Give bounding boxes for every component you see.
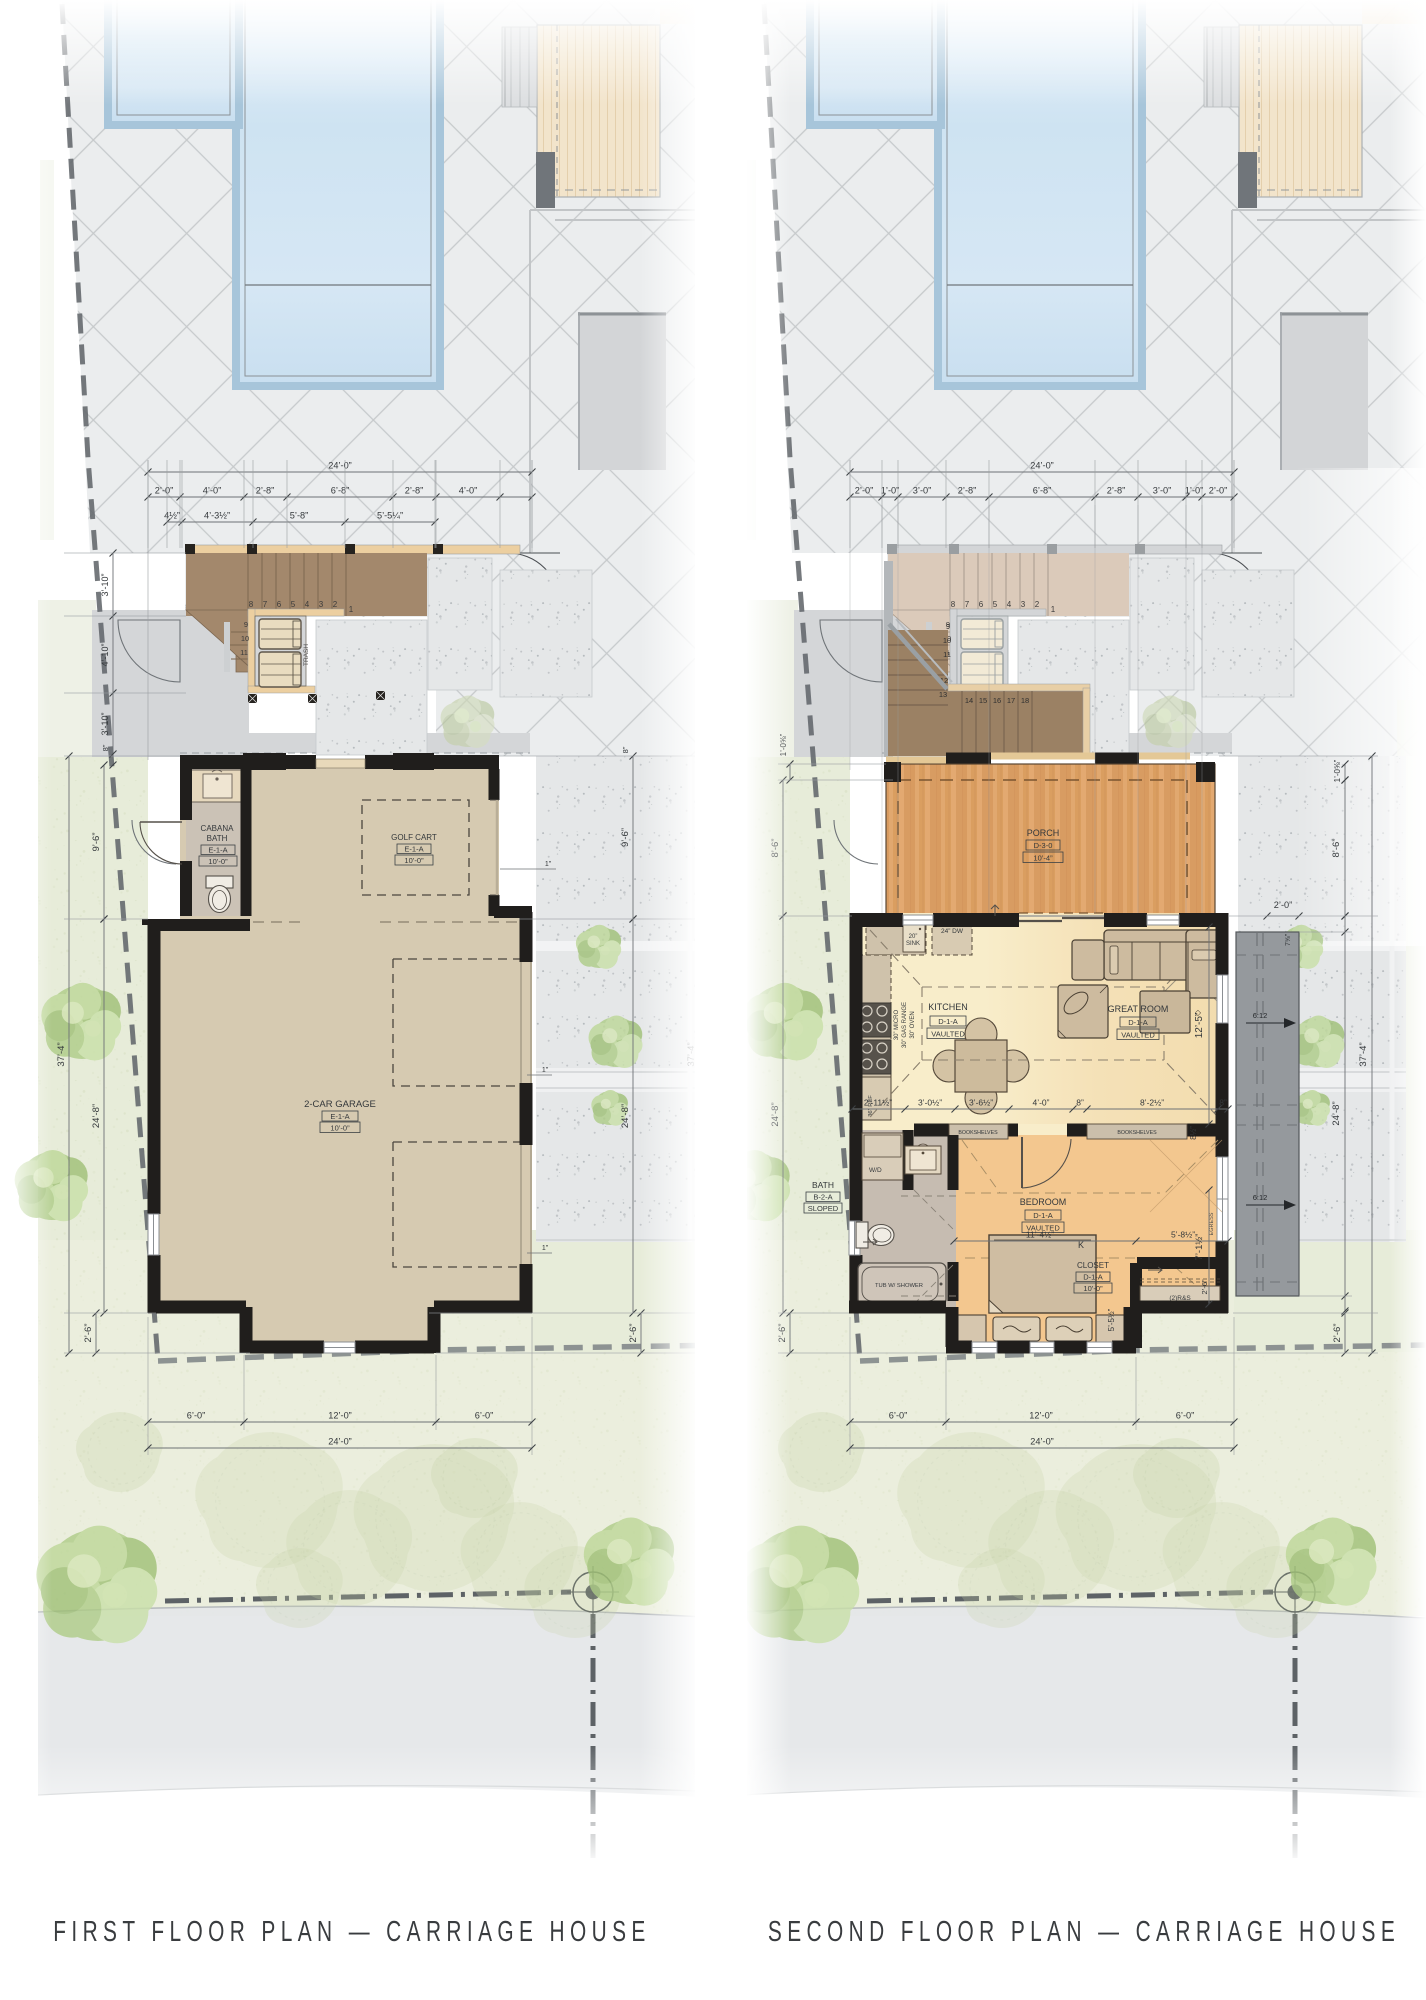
svg-text:4½”: 4½” — [164, 511, 180, 521]
svg-text:10: 10 — [943, 636, 951, 645]
svg-text:CABANA: CABANA — [201, 824, 235, 833]
svg-text:8”: 8” — [1076, 1098, 1084, 1108]
svg-text:30” OVEN: 30” OVEN — [910, 1011, 916, 1038]
svg-text:7: 7 — [263, 600, 268, 609]
svg-text:2’-0”: 2’-0” — [855, 486, 873, 496]
svg-text:2’-0”: 2’-0” — [155, 486, 173, 496]
svg-text:VAULTED: VAULTED — [931, 1029, 965, 1038]
svg-text:GREAT ROOM: GREAT ROOM — [1108, 1004, 1169, 1014]
svg-text:9’-6”: 9’-6” — [91, 832, 102, 851]
svg-text:7’-1½”: 7’-1½” — [1194, 1234, 1205, 1261]
svg-text:14: 14 — [965, 696, 973, 705]
svg-text:PORCH: PORCH — [1027, 828, 1060, 838]
svg-text:E-1-A: E-1-A — [208, 845, 227, 854]
svg-text:SLOPED: SLOPED — [808, 1204, 839, 1213]
svg-text:6: 6 — [979, 600, 984, 609]
svg-text:2’-6”: 2’-6” — [83, 1323, 94, 1342]
svg-text:10’-0”: 10’-0” — [1083, 1284, 1103, 1293]
svg-text:37’-4”: 37’-4” — [56, 1042, 67, 1066]
svg-text:24’-0”: 24’-0” — [1030, 461, 1054, 471]
svg-text:4: 4 — [1007, 600, 1012, 609]
svg-text:6: 6 — [277, 600, 282, 609]
svg-text:20”: 20” — [909, 934, 918, 940]
svg-text:10: 10 — [241, 634, 249, 643]
svg-text:4’-0”: 4’-0” — [203, 486, 221, 496]
svg-text:BOOKSHELVES: BOOKSHELVES — [1117, 1130, 1157, 1136]
svg-text:4’-3½”: 4’-3½” — [204, 511, 230, 521]
svg-text:CLOSET: CLOSET — [1077, 1261, 1109, 1270]
svg-text:30” GAS RANGE: 30” GAS RANGE — [902, 1002, 908, 1048]
svg-text:2’-6”: 2’-6” — [628, 1323, 639, 1342]
svg-text:13: 13 — [939, 690, 947, 699]
svg-text:24’-8”: 24’-8” — [1331, 1101, 1342, 1125]
svg-text:6’-0”: 6’-0” — [475, 1411, 493, 1421]
svg-text:12’-5”: 12’-5” — [1194, 1013, 1205, 1039]
svg-text:2’-8”: 2’-8” — [1107, 486, 1125, 496]
svg-text:12’-0”: 12’-0” — [328, 1411, 352, 1421]
svg-text:2’-11½”: 2’-11½” — [864, 1098, 892, 1108]
svg-text:SECOND FLOOR PLAN — CARRIAGE H: SECOND FLOOR PLAN — CARRIAGE HOUSE — [768, 1916, 1400, 1948]
svg-text:BEDROOM: BEDROOM — [1020, 1197, 1067, 1207]
svg-text:5: 5 — [993, 600, 998, 609]
svg-text:3: 3 — [1021, 600, 1026, 609]
svg-text:D-1-A: D-1-A — [938, 1017, 958, 1026]
svg-text:10’-4”: 10’-4” — [1033, 853, 1053, 862]
svg-text:30” MICRO: 30” MICRO — [894, 1010, 900, 1041]
svg-text:9’-6”: 9’-6” — [620, 828, 631, 847]
svg-text:BATH: BATH — [207, 834, 228, 843]
svg-text:1’-0”: 1’-0” — [1185, 486, 1203, 496]
svg-text:6:12: 6:12 — [1253, 1193, 1268, 1202]
svg-text:2’-6”: 2’-6” — [1332, 1323, 1343, 1342]
svg-text:1’-0⅝”: 1’-0⅝” — [1333, 759, 1342, 782]
svg-text:SINK: SINK — [906, 941, 920, 947]
svg-text:3’-0”: 3’-0” — [1153, 486, 1171, 496]
svg-text:5’-8½”: 5’-8½” — [1171, 1230, 1195, 1240]
svg-text:6’-8”: 6’-8” — [1033, 486, 1051, 496]
svg-text:24’-8”: 24’-8” — [91, 1104, 102, 1128]
svg-text:16: 16 — [993, 696, 1001, 705]
svg-text:BATH: BATH — [812, 1180, 834, 1190]
svg-text:FIRST FLOOR PLAN — CARRIAGE HO: FIRST FLOOR PLAN — CARRIAGE HOUSE — [53, 1916, 651, 1948]
svg-text:1: 1 — [1051, 605, 1056, 614]
svg-text:3’-10”: 3’-10” — [100, 712, 110, 735]
svg-text:4’-0”: 4’-0” — [459, 486, 477, 496]
svg-text:17: 17 — [1007, 696, 1015, 705]
svg-text:37’-4”: 37’-4” — [1358, 1042, 1369, 1066]
svg-text:D-3-0: D-3-0 — [1034, 841, 1053, 850]
svg-text:4’-10”: 4’-10” — [100, 643, 110, 666]
svg-text:8’-2½”: 8’-2½” — [1140, 1098, 1164, 1108]
svg-text:E-1-A: E-1-A — [330, 1112, 349, 1121]
svg-text:18: 18 — [1021, 696, 1029, 705]
svg-text:8”: 8” — [101, 744, 110, 751]
svg-text:E-1-A: E-1-A — [404, 844, 423, 853]
svg-text:10’-0”: 10’-0” — [330, 1123, 350, 1132]
svg-text:6’-8”: 6’-8” — [331, 486, 349, 496]
svg-text:4: 4 — [305, 600, 310, 609]
svg-text:12’-0”: 12’-0” — [1029, 1411, 1053, 1421]
svg-text:D-1-A: D-1-A — [1128, 1018, 1148, 1027]
svg-text:7: 7 — [965, 600, 970, 609]
svg-text:W/D: W/D — [869, 1167, 882, 1174]
svg-text:6’-0”: 6’-0” — [187, 1411, 205, 1421]
svg-text:TRASH: TRASH — [303, 644, 310, 666]
svg-text:3’-0½”: 3’-0½” — [918, 1098, 942, 1108]
svg-text:2’-0”: 2’-0” — [1274, 900, 1292, 910]
svg-text:TUB W/ SHOWER: TUB W/ SHOWER — [875, 1283, 923, 1289]
svg-text:24’-0”: 24’-0” — [328, 1437, 352, 1447]
svg-text:15: 15 — [979, 696, 987, 705]
svg-text:KITCHEN: KITCHEN — [928, 1002, 968, 1012]
svg-text:8: 8 — [951, 600, 956, 609]
svg-text:4’-0”: 4’-0” — [1032, 1098, 1049, 1108]
svg-text:5’-5¼”: 5’-5¼” — [377, 511, 403, 521]
svg-text:24” DW: 24” DW — [941, 928, 964, 935]
svg-text:7⅝”: 7⅝” — [1285, 933, 1292, 946]
svg-text:1”: 1” — [542, 1067, 549, 1074]
svg-text:3’-0”: 3’-0” — [913, 486, 931, 496]
svg-text:1: 1 — [349, 605, 354, 614]
svg-text:2’-8”: 2’-8” — [958, 486, 976, 496]
svg-text:24’-0”: 24’-0” — [328, 461, 352, 471]
svg-text:2’-8”: 2’-8” — [256, 486, 274, 496]
svg-text:3’-10”: 3’-10” — [100, 573, 110, 596]
svg-text:6:12: 6:12 — [1253, 1011, 1268, 1020]
svg-text:VAULTED: VAULTED — [1121, 1030, 1155, 1039]
svg-text:2’-8”: 2’-8” — [405, 486, 423, 496]
svg-text:3’-6½”: 3’-6½” — [969, 1098, 993, 1108]
svg-text:6’-0”: 6’-0” — [1176, 1411, 1194, 1421]
svg-text:5: 5 — [291, 600, 296, 609]
svg-text:BOOKSHELVES: BOOKSHELVES — [958, 1130, 998, 1136]
svg-text:2’-6”: 2’-6” — [1200, 1279, 1209, 1295]
svg-text:2: 2 — [333, 600, 338, 609]
svg-text:8”: 8” — [621, 746, 630, 753]
svg-text:11: 11 — [240, 648, 248, 657]
svg-text:6’-0”: 6’-0” — [889, 1411, 907, 1421]
svg-text:D-1-A: D-1-A — [1033, 1211, 1053, 1220]
svg-text:GOLF CART: GOLF CART — [391, 833, 437, 842]
svg-text:1’-0”: 1’-0” — [881, 486, 899, 496]
svg-text:5’-8”: 5’-8” — [290, 511, 308, 521]
svg-text:B-2-A: B-2-A — [813, 1192, 832, 1201]
svg-text:D-1-A: D-1-A — [1083, 1272, 1103, 1281]
svg-text:2’-0”: 2’-0” — [1209, 486, 1227, 496]
svg-text:24’-8”: 24’-8” — [620, 1104, 631, 1128]
svg-text:11’-4½”: 11’-4½” — [1026, 1230, 1054, 1240]
svg-text:9: 9 — [244, 620, 248, 629]
svg-text:9: 9 — [946, 622, 950, 631]
svg-text:2-CAR GARAGE: 2-CAR GARAGE — [304, 1099, 376, 1110]
svg-text:10’-0”: 10’-0” — [208, 857, 228, 866]
svg-text:1”: 1” — [545, 861, 552, 868]
svg-text:24’-0”: 24’-0” — [1030, 1437, 1054, 1447]
svg-text:EGRESS: EGRESS — [1209, 1212, 1215, 1235]
svg-text:11: 11 — [943, 650, 951, 659]
svg-text:10’-0”: 10’-0” — [404, 856, 424, 865]
svg-text:8½”: 8½” — [1189, 1126, 1198, 1140]
svg-text:8’-6”: 8’-6” — [1331, 838, 1342, 857]
svg-text:1”: 1” — [542, 1245, 549, 1252]
svg-text:8: 8 — [249, 600, 254, 609]
svg-text:8”: 8” — [1219, 1098, 1227, 1108]
svg-text:2: 2 — [1035, 600, 1040, 609]
svg-text:3: 3 — [319, 600, 324, 609]
svg-text:K: K — [1078, 1240, 1084, 1250]
svg-text:5’-5½”: 5’-5½” — [1107, 1308, 1116, 1331]
